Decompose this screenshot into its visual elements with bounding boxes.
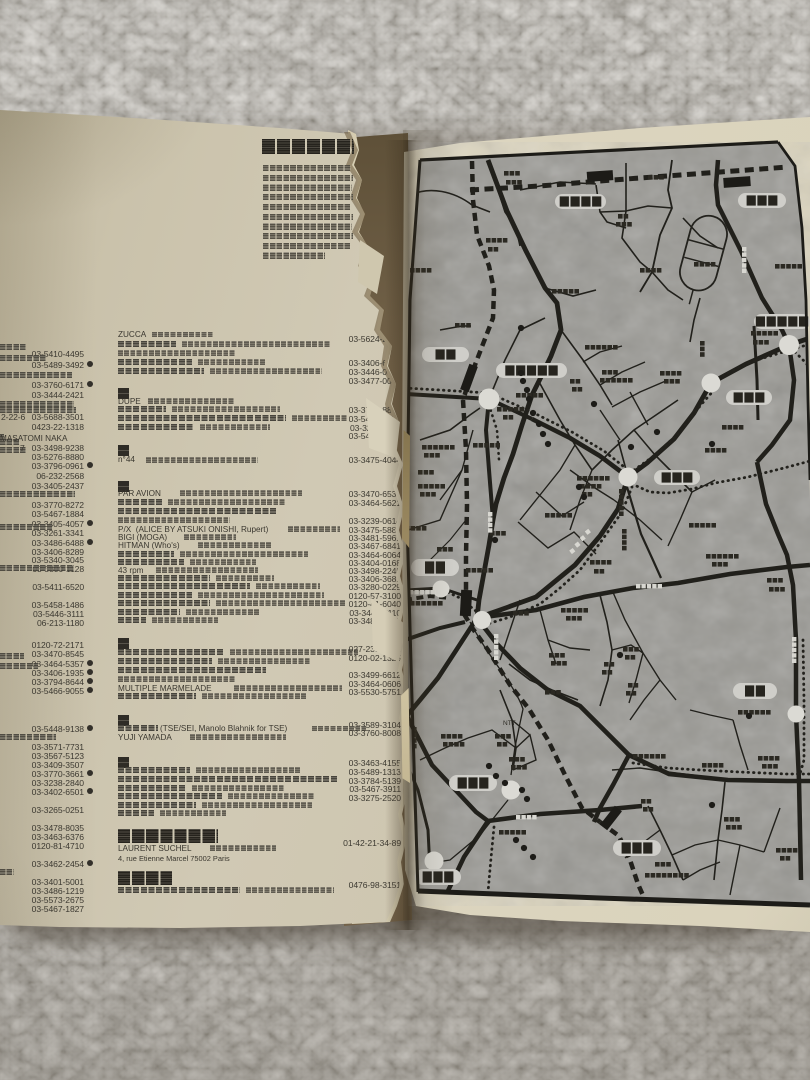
svg-text:NTT: NTT (503, 720, 516, 727)
